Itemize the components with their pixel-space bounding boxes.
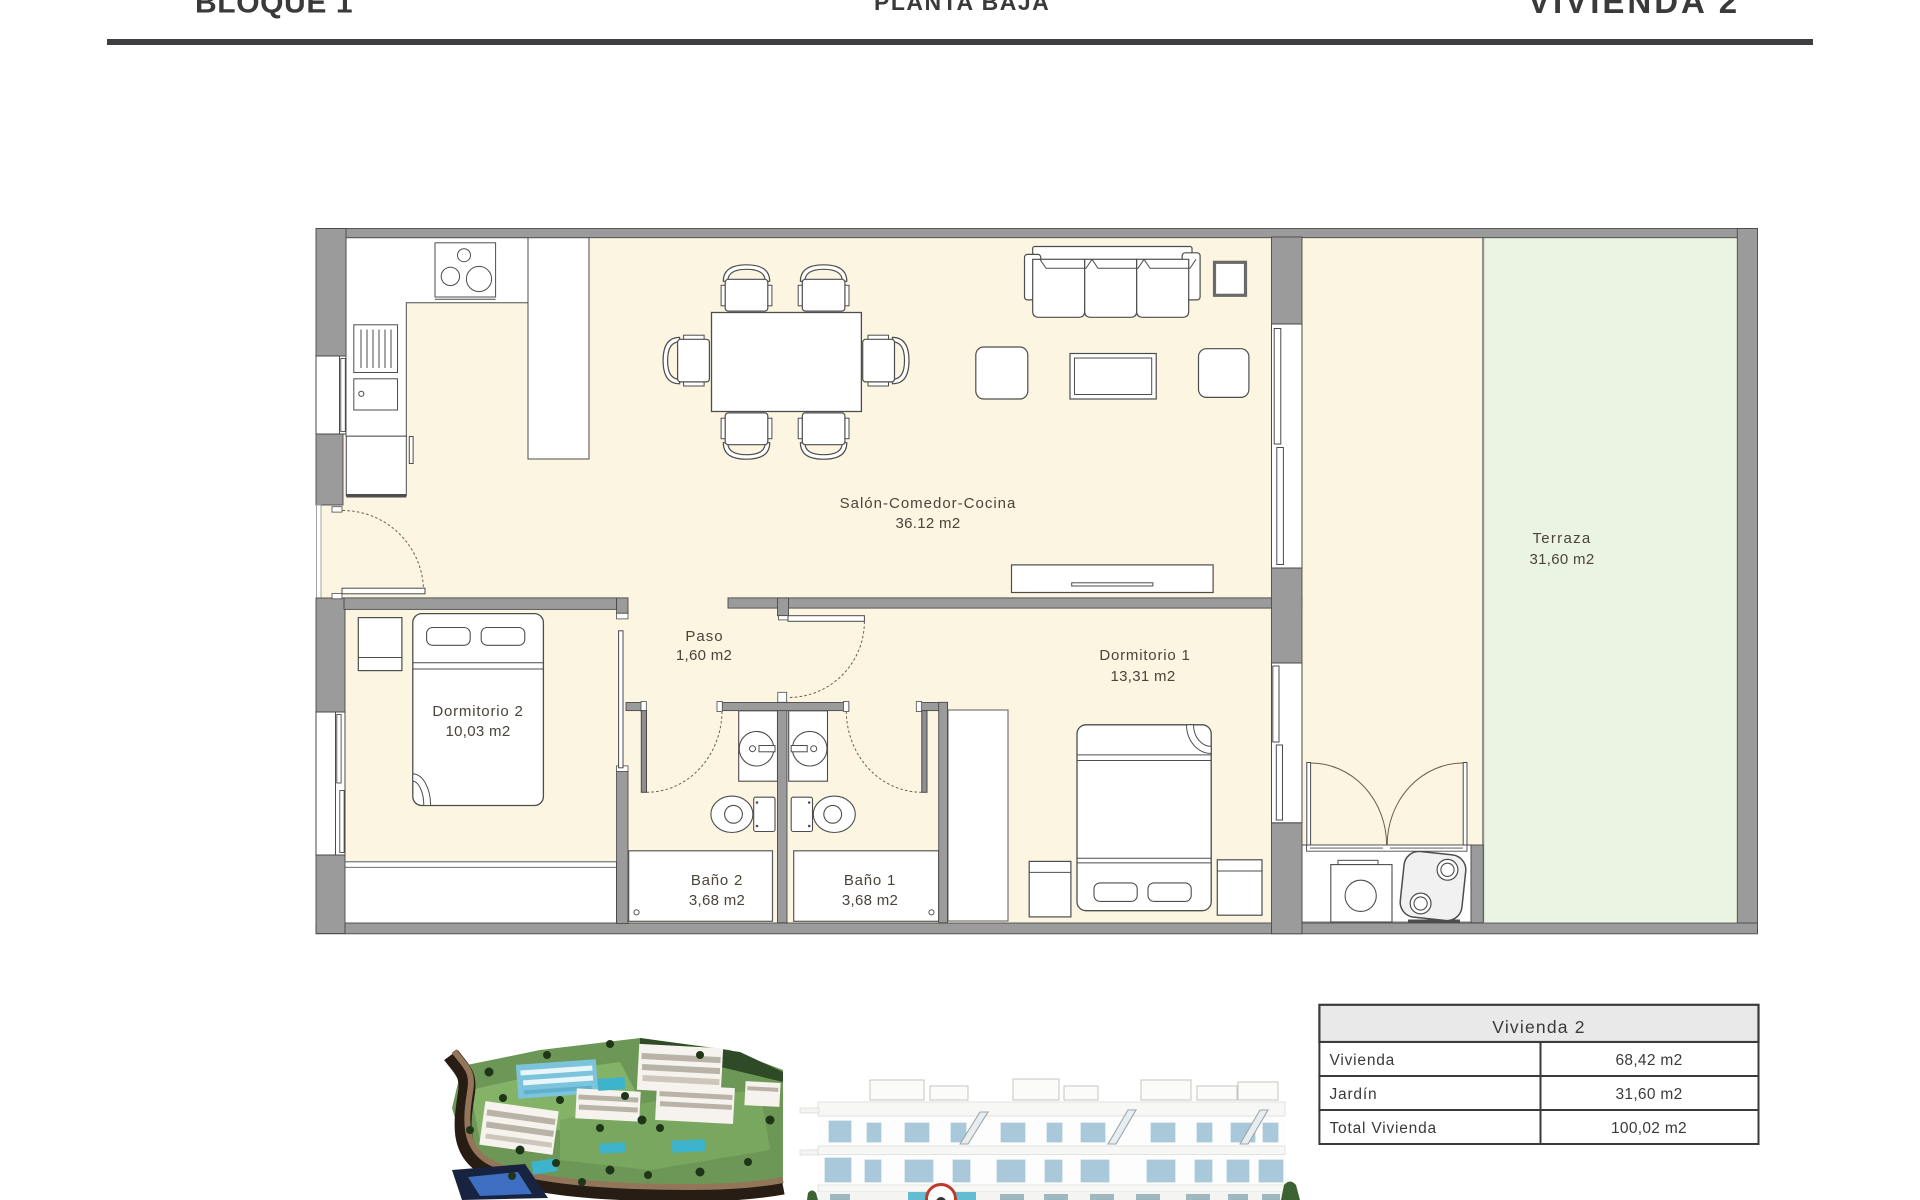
- svg-text:Vivienda: Vivienda: [1330, 1052, 1396, 1069]
- svg-text:Dormitorio 2: Dormitorio 2: [432, 703, 523, 720]
- svg-text:10,03 m2: 10,03 m2: [446, 723, 511, 740]
- svg-text:Baño 1: Baño 1: [844, 872, 896, 889]
- svg-text:13,31 m2: 13,31 m2: [1111, 668, 1176, 685]
- svg-text:Terraza: Terraza: [1532, 530, 1591, 547]
- svg-text:Jardín: Jardín: [1330, 1086, 1378, 1103]
- svg-text:Paso: Paso: [685, 628, 723, 645]
- svg-text:3,68 m2: 3,68 m2: [689, 892, 745, 909]
- svg-text:VIVIENDA 2: VIVIENDA 2: [1528, 0, 1740, 20]
- svg-text:Baño 2: Baño 2: [691, 872, 743, 889]
- svg-text:1,60 m2: 1,60 m2: [676, 647, 732, 664]
- svg-text:31,60 m2: 31,60 m2: [1615, 1086, 1682, 1103]
- svg-text:BLOQUE 1: BLOQUE 1: [195, 0, 353, 20]
- svg-text:100,02 m2: 100,02 m2: [1611, 1120, 1687, 1137]
- svg-text:Vivienda 2: Vivienda 2: [1492, 1017, 1585, 1037]
- svg-text:3,68 m2: 3,68 m2: [842, 892, 898, 909]
- svg-text:36.12 m2: 36.12 m2: [896, 515, 961, 532]
- svg-text:68,42 m2: 68,42 m2: [1615, 1052, 1682, 1069]
- svg-text:PLANTA BAJA: PLANTA BAJA: [874, 0, 1050, 15]
- svg-text:31,60 m2: 31,60 m2: [1530, 551, 1595, 568]
- svg-text:Salón-Comedor-Cocina: Salón-Comedor-Cocina: [840, 495, 1017, 512]
- svg-text:Total Vivienda: Total Vivienda: [1330, 1120, 1437, 1137]
- svg-text:Dormitorio 1: Dormitorio 1: [1099, 647, 1190, 664]
